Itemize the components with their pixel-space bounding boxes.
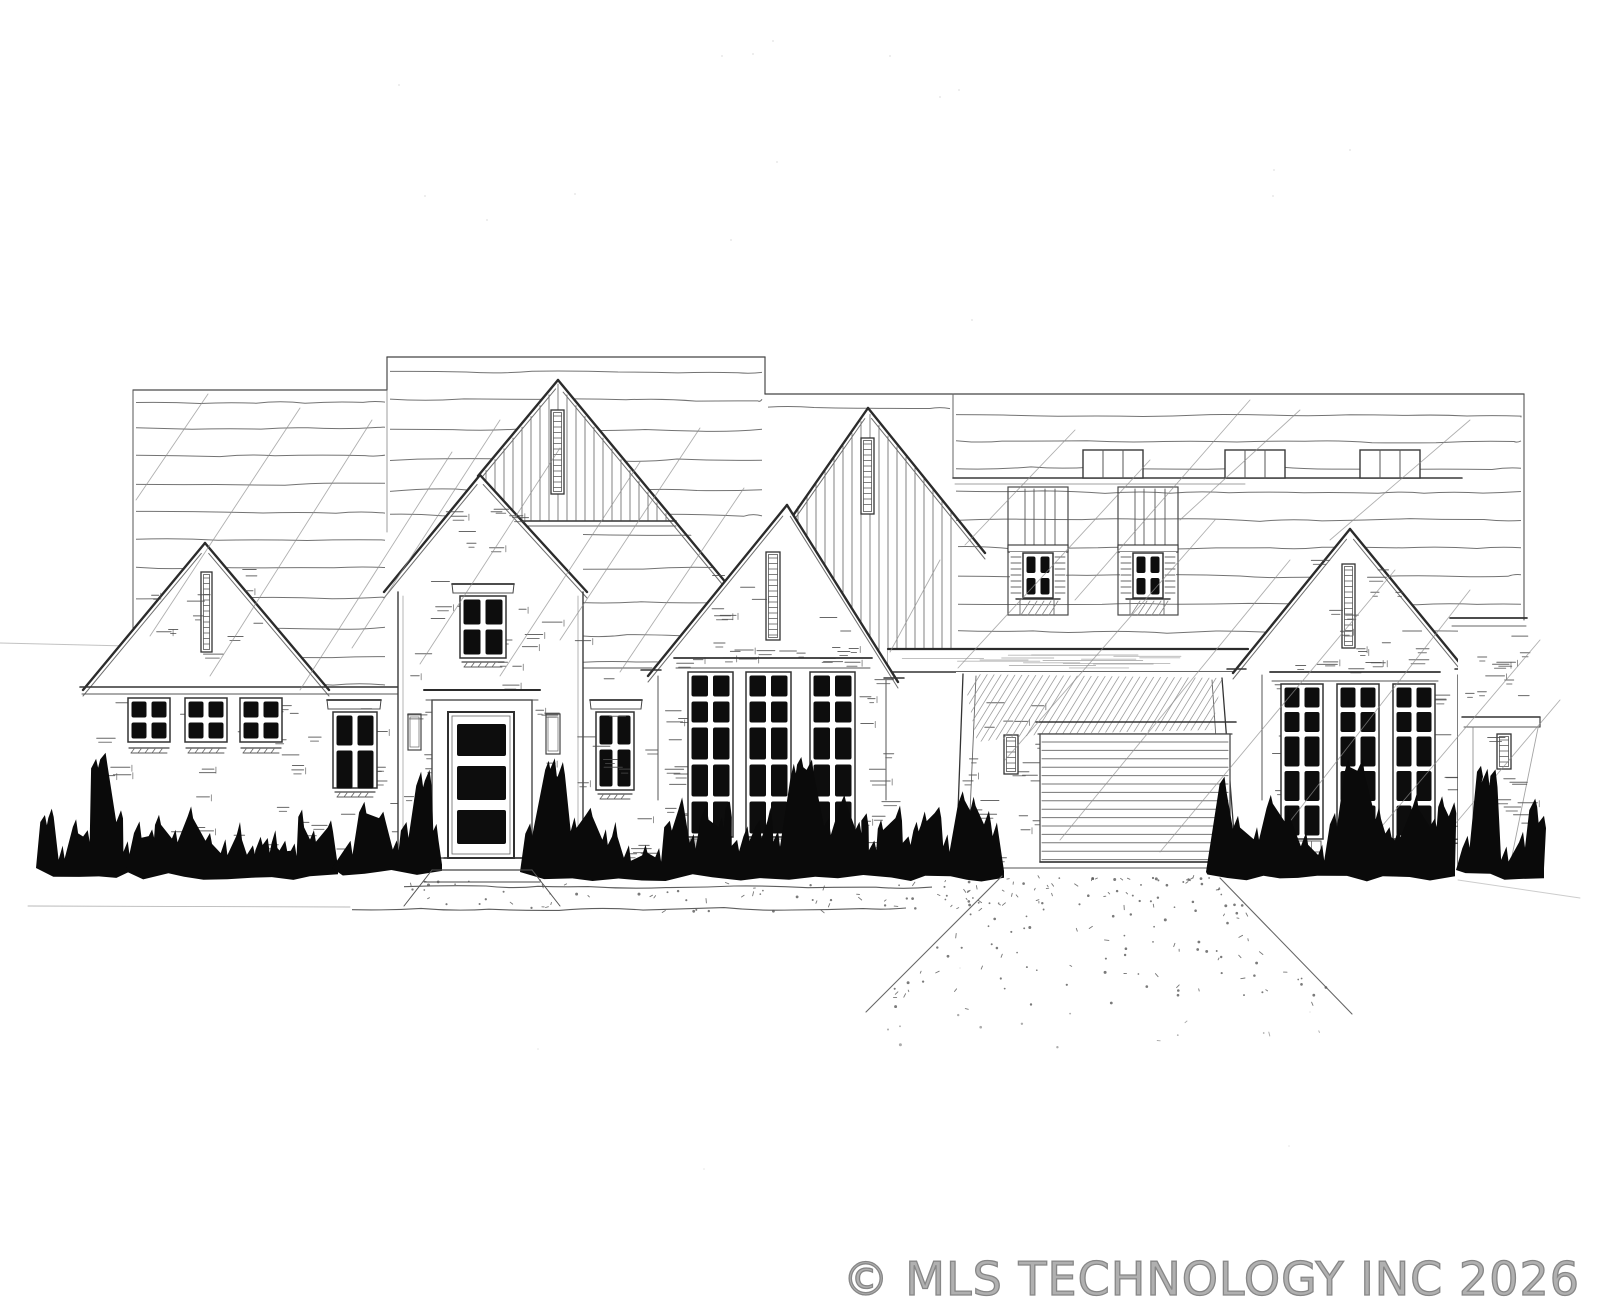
roofline-and-chimneys [953, 394, 1462, 484]
elevation-sketch: © MLS TECHNOLOGY INC 2026 [0, 0, 1600, 1312]
garage-canopy [888, 649, 1248, 673]
sketch-canvas [0, 0, 1600, 1312]
entry-door [424, 690, 540, 858]
garage-dormer-windows [1008, 487, 1178, 615]
ground [28, 870, 1580, 1048]
mls-watermark: © MLS TECHNOLOGY INC 2026 [843, 1256, 1580, 1302]
